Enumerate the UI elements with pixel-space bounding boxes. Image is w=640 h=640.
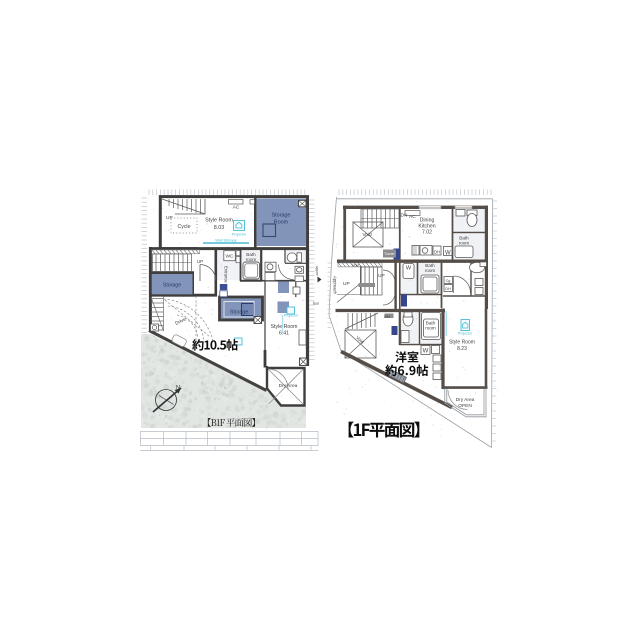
svg-text:Storage: Storage xyxy=(230,310,248,316)
svg-text:room: room xyxy=(459,241,470,246)
svg-text:Void: Void xyxy=(352,264,359,268)
svg-text:6.41: 6.41 xyxy=(279,331,289,337)
svg-text:DN: DN xyxy=(401,213,408,219)
svg-text:Storage: Storage xyxy=(272,213,291,219)
svg-text:AC: AC xyxy=(233,205,240,211)
svg-text:8.03: 8.03 xyxy=(214,225,225,231)
svg-text:UP: UP xyxy=(197,259,203,264)
svg-text:AC: AC xyxy=(409,214,416,220)
svg-text:Storage: Storage xyxy=(163,283,181,289)
svg-text:Wall Storage: Wall Storage xyxy=(215,239,237,243)
svg-text:UP: UP xyxy=(166,215,173,221)
svg-text:8.23: 8.23 xyxy=(457,346,467,352)
svg-text:Projector: Projector xyxy=(284,314,299,318)
svg-text:Style Room: Style Room xyxy=(205,218,233,224)
svg-text:Turner: Turner xyxy=(384,252,395,256)
svg-text:OPEN: OPEN xyxy=(458,403,472,409)
svg-text:Style Room: Style Room xyxy=(271,324,298,330)
svg-text:UP: UP xyxy=(378,273,385,279)
svg-text:Dry Area: Dry Area xyxy=(279,383,298,389)
svg-text:Entrance: Entrance xyxy=(224,266,229,283)
svg-text:Cg: Cg xyxy=(446,279,451,283)
svg-text:WC: WC xyxy=(226,254,235,260)
svg-text:Void: Void xyxy=(362,232,372,238)
svg-text:Cycle: Cycle xyxy=(178,224,191,230)
svg-text:upper: upper xyxy=(315,266,319,276)
svg-text:room: room xyxy=(246,257,257,262)
svg-text:7.02: 7.02 xyxy=(422,230,432,236)
svg-text:her: her xyxy=(313,301,320,306)
svg-text:room: room xyxy=(425,326,436,331)
svg-text:Approach: Approach xyxy=(333,276,338,295)
svg-text:DN: DN xyxy=(384,314,390,319)
svg-text:Style Room: Style Room xyxy=(449,340,475,346)
svg-text:N: N xyxy=(176,385,180,391)
svg-text:W: W xyxy=(406,266,412,272)
svg-text:UP: UP xyxy=(343,281,350,287)
svg-text:W: W xyxy=(445,251,451,257)
svg-text:DH: DH xyxy=(434,250,440,255)
svg-text:Projector: Projector xyxy=(458,332,473,336)
svg-text:Projector: Projector xyxy=(232,233,247,237)
svg-text:Room: Room xyxy=(274,220,289,226)
svg-text:W: W xyxy=(423,349,429,355)
svg-text:DH: DH xyxy=(445,287,451,291)
svg-text:Dry Area: Dry Area xyxy=(456,397,475,403)
svg-text:room: room xyxy=(425,268,436,273)
